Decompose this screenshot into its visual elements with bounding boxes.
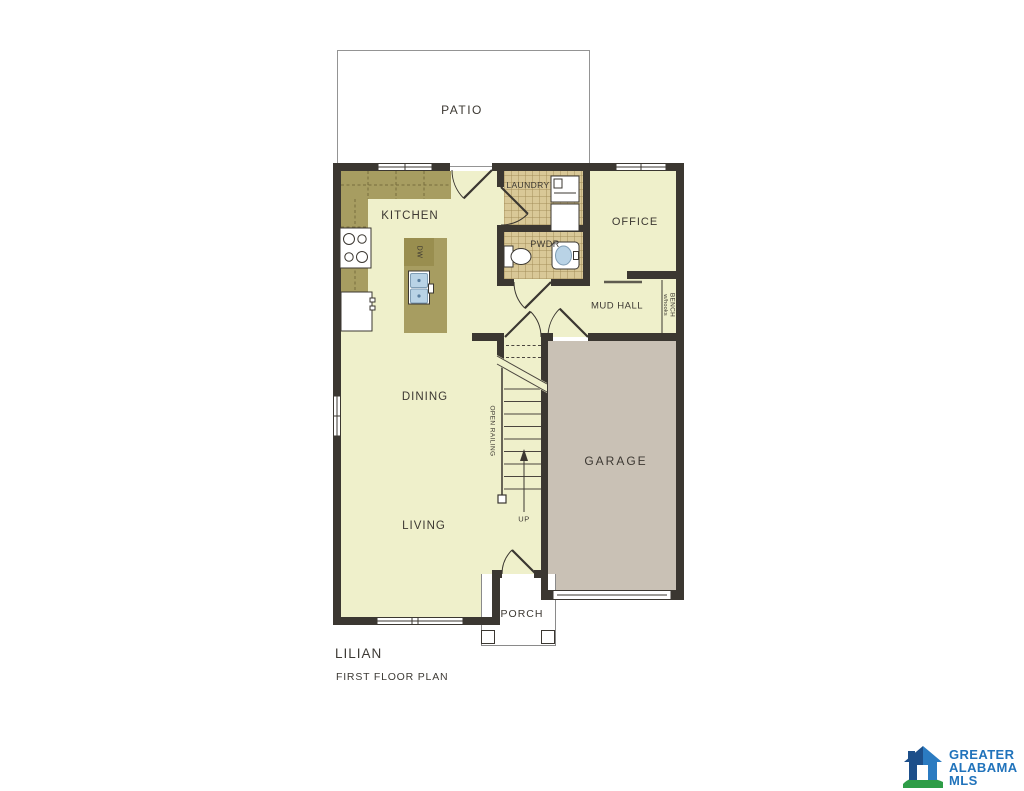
wall-segment — [333, 163, 450, 171]
label-pwdr: PWDR — [530, 239, 560, 249]
wall-segment — [497, 225, 590, 232]
wall-segment — [541, 333, 553, 341]
label-open-railing: OPEN RAILING — [489, 405, 496, 456]
kitchen-counter-top — [341, 171, 451, 199]
label-bench: BENCH — [669, 293, 676, 317]
wall-segment — [497, 333, 504, 363]
logo-line-3: MLS — [949, 774, 1018, 787]
stair-tread-dashed — [506, 345, 541, 346]
wall-segment — [541, 590, 684, 600]
floor-plan-image: PATIO KITCHEN LAUNDRY OFFICE PWDR MUD HA… — [0, 0, 1024, 791]
wall-segment — [492, 578, 500, 625]
label-bench-hooks: w/hooks — [662, 294, 668, 316]
wall-segment — [492, 570, 502, 578]
label-living: LIVING — [402, 520, 446, 532]
mls-logo: GREATER ALABAMA MLS — [902, 744, 1018, 788]
label-up: UP — [518, 515, 529, 524]
plan-name: LILIAN — [335, 646, 382, 661]
wall-segment — [676, 163, 684, 600]
wall-segment — [333, 617, 500, 625]
label-dishwasher: DW — [416, 246, 423, 259]
stair-tread-dashed — [506, 357, 541, 358]
wall-segment — [497, 163, 504, 187]
label-porch: PORCH — [501, 608, 544, 620]
label-garage: GARAGE — [584, 454, 647, 468]
wall-segment — [497, 279, 514, 286]
label-patio: PATIO — [441, 103, 483, 117]
wall-segment — [541, 333, 548, 598]
wall-segment — [333, 163, 341, 625]
stair-treads — [504, 377, 541, 501]
label-kitchen: KITCHEN — [381, 210, 438, 222]
kitchen-counter-left — [341, 199, 368, 293]
wall-segment — [497, 225, 504, 286]
porch-post — [541, 630, 555, 644]
label-mud-hall: MUD HALL — [591, 301, 643, 312]
label-office: OFFICE — [612, 216, 658, 228]
label-laundry: LAUNDRY — [506, 180, 549, 190]
wall-segment — [627, 271, 684, 279]
porch-post — [481, 630, 495, 644]
wall-segment — [588, 333, 684, 341]
plan-subtitle: FIRST FLOOR PLAN — [336, 671, 448, 683]
label-dining: DINING — [402, 391, 448, 403]
mls-house-icon — [902, 744, 944, 788]
wall-segment — [583, 163, 590, 286]
